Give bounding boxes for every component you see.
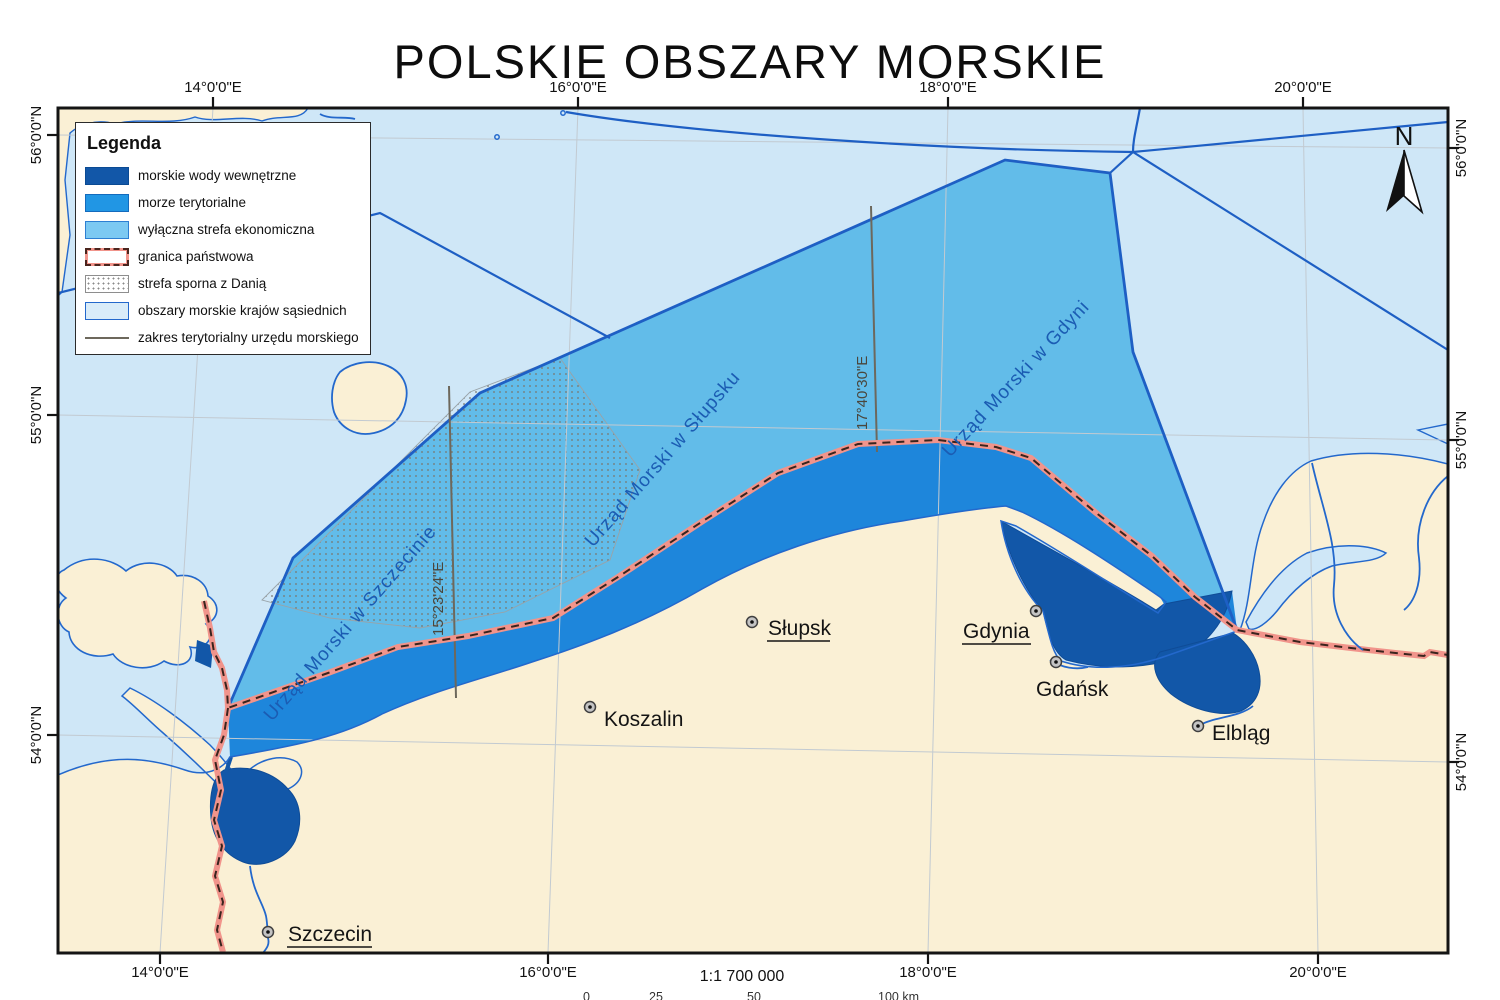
legend: Legenda morskie wody wewnętrzne morze te… — [75, 122, 371, 355]
city-marker — [1031, 606, 1042, 617]
legend-item: wyłączna strefa ekonomiczna — [76, 216, 370, 243]
legend-item: morze terytorialne — [76, 189, 370, 216]
scalebar-label: 50 — [747, 990, 761, 1000]
city-marker — [1193, 721, 1204, 732]
scalebar-label: 100 km — [878, 990, 919, 1000]
scalebar-label: 0 — [583, 990, 590, 1000]
axis-label-top: 14°0'0"E — [184, 79, 242, 96]
axis-label-top: 18°0'0"E — [919, 79, 977, 96]
territorial-sea-swatch — [85, 194, 129, 212]
internal-waters-swatch — [85, 167, 129, 185]
axis-label-bottom: 18°0'0"E — [899, 964, 957, 981]
map-document: POLSKIE OBSZARY MORSKIE — [0, 0, 1500, 1000]
legend-item-label: morze terytorialne — [138, 195, 246, 210]
city-label-elblag: Elbląg — [1212, 722, 1270, 745]
legend-item-label: zakres terytorialny urzędu morskiego — [138, 330, 359, 345]
axis-label-top: 16°0'0"E — [549, 79, 607, 96]
city-marker — [747, 617, 758, 628]
state-border-dash — [85, 248, 129, 266]
axis-label-right: 55°0'0"N — [1453, 411, 1470, 469]
north-arrow-label: N — [1395, 121, 1414, 151]
office-extent-swatch — [85, 337, 129, 339]
axis-label-bottom: 20°0'0"E — [1289, 964, 1347, 981]
neighbor-areas-swatch — [85, 302, 129, 320]
meridian-label-15: 15°23'24"E — [430, 562, 447, 636]
legend-item: strefa sporna z Danią — [76, 270, 370, 297]
axis-label-left: 54°0'0"N — [28, 706, 45, 764]
axis-label-bottom: 14°0'0"E — [131, 964, 189, 981]
legend-item-label: wyłączna strefa ekonomiczna — [138, 222, 314, 237]
city-label-szczecin: Szczecin — [288, 923, 372, 946]
city-marker — [1051, 657, 1062, 668]
legend-item-label: granica państwowa — [138, 249, 254, 264]
city-marker — [263, 927, 274, 938]
legend-item-label: strefa sporna z Danią — [138, 276, 266, 291]
legend-item: granica państwowa — [76, 243, 370, 270]
state-border-swatch — [85, 248, 129, 266]
city-label-gdansk: Gdańsk — [1036, 678, 1109, 701]
axis-label-top: 20°0'0"E — [1274, 79, 1332, 96]
legend-item: morskie wody wewnętrzne — [76, 162, 370, 189]
legend-item: zakres terytorialny urzędu morskiego — [76, 324, 370, 351]
disputed-zone-swatch — [85, 275, 129, 293]
axis-label-right: 56°0'0"N — [1453, 119, 1470, 177]
scalebar: 0 25 50 100 km — [0, 990, 1500, 1000]
legend-item-label: morskie wody wewnętrzne — [138, 168, 296, 183]
meridian-label-17: 17°40'30"E — [854, 356, 871, 430]
axis-label-left: 55°0'0"N — [28, 386, 45, 444]
city-label-slupsk: Słupsk — [768, 617, 832, 640]
scalebar-label: 25 — [649, 990, 663, 1000]
axis-label-left: 56°0'0"N — [28, 106, 45, 164]
city-label-gdynia: Gdynia — [963, 620, 1030, 643]
legend-item-label: obszary morskie krajów sąsiednich — [138, 303, 347, 318]
legend-title: Legenda — [87, 133, 370, 154]
city-marker — [585, 702, 596, 713]
scale-text: 1:1 700 000 — [592, 968, 892, 986]
city-label-koszalin: Koszalin — [604, 708, 683, 731]
eez-swatch — [85, 221, 129, 239]
axis-label-bottom: 16°0'0"E — [519, 964, 577, 981]
axis-label-right: 54°0'0"N — [1453, 733, 1470, 791]
legend-item: obszary morskie krajów sąsiednich — [76, 297, 370, 324]
